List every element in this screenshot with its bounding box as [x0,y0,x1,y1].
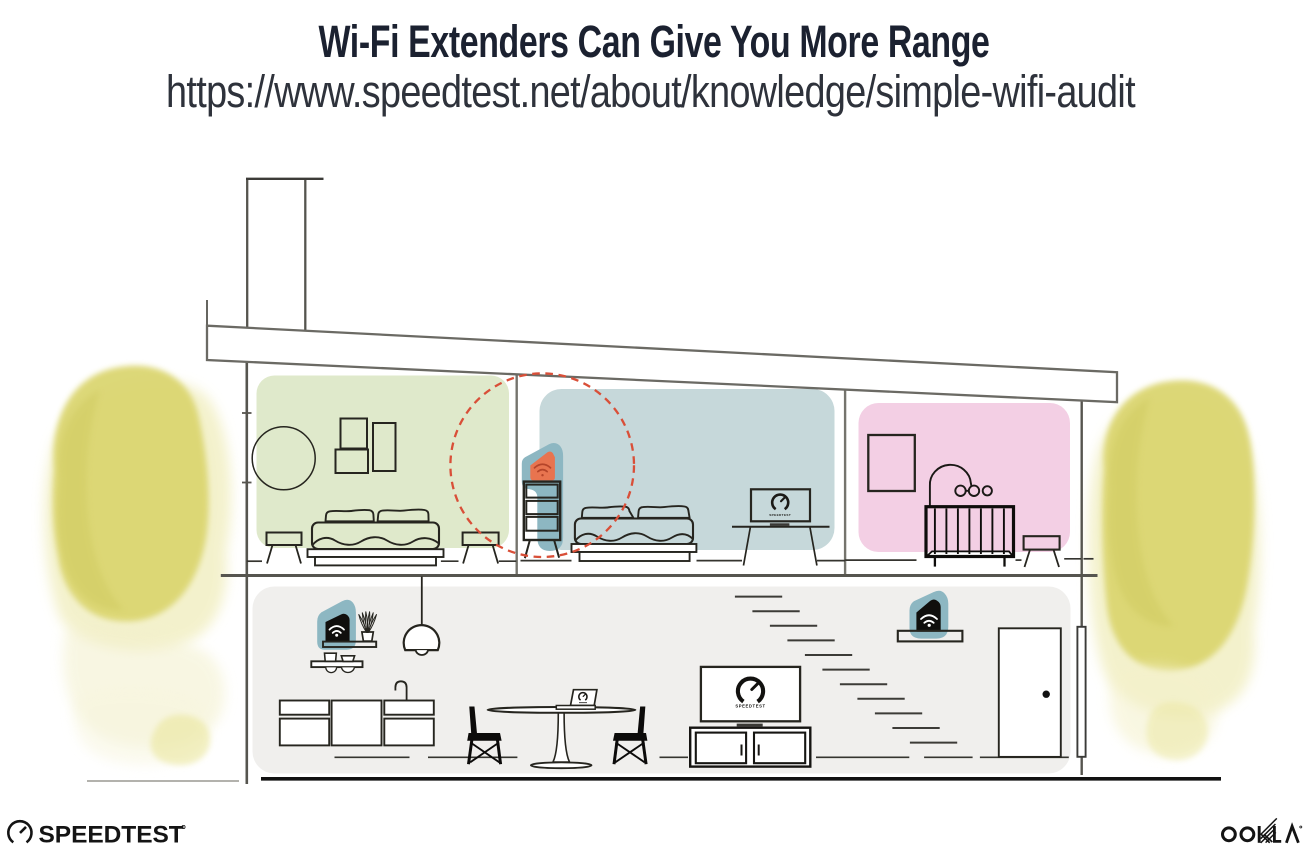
svg-text:SPEEDTEST: SPEEDTEST [735,704,765,709]
svg-text:SPEEDTEST: SPEEDTEST [39,822,184,849]
svg-text:SPEEDTEST: SPEEDTEST [769,513,791,517]
